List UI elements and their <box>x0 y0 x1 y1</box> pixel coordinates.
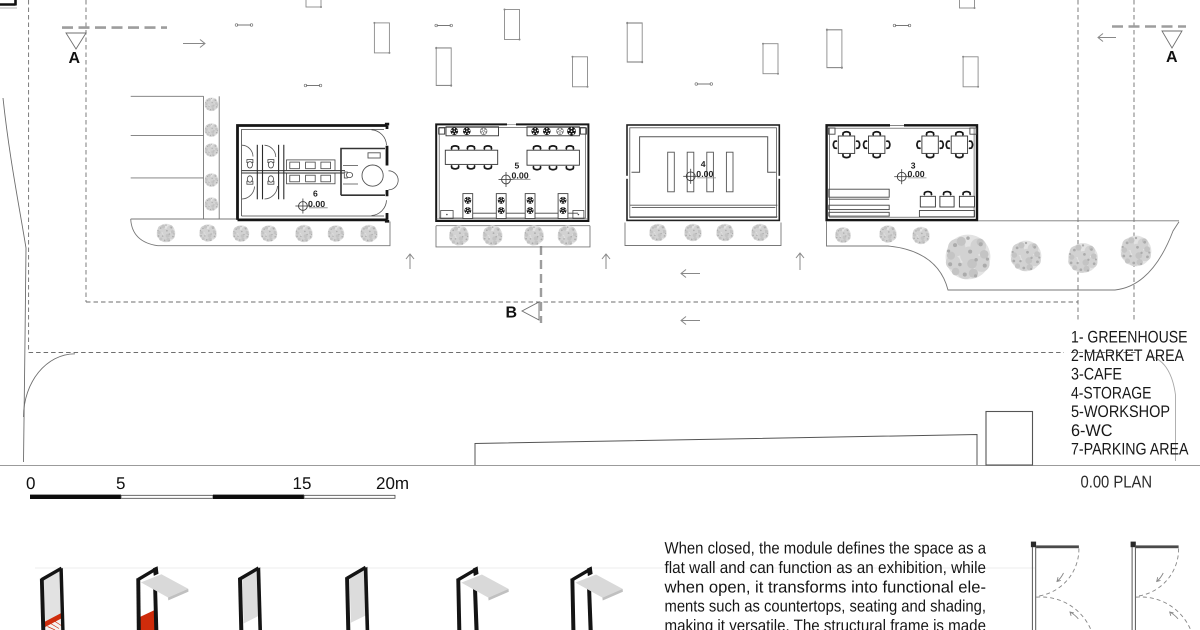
svg-text:making it versatile. The struc: making it versatile. The structural fram… <box>665 616 987 630</box>
svg-text:1- GREENHOUSE: 1- GREENHOUSE <box>1071 327 1188 346</box>
svg-text:when open, it transforms into: when open, it transforms into functional… <box>663 577 986 596</box>
svg-text:20m: 20m <box>376 474 409 493</box>
svg-text:4-STORAGE: 4-STORAGE <box>1071 383 1152 402</box>
svg-text:5: 5 <box>116 474 125 493</box>
svg-text:ments such as countertops, sea: ments such as countertops, seating and s… <box>665 597 987 616</box>
svg-text:6-WC: 6-WC <box>1071 421 1113 440</box>
svg-text:2-MARKET AREA: 2-MARKET AREA <box>1071 346 1185 365</box>
svg-text:flat wall and can function as: flat wall and can function as an exhibit… <box>665 558 987 577</box>
svg-text:When closed, the module define: When closed, the module defines the spac… <box>665 539 987 558</box>
svg-text:7-PARKING AREA: 7-PARKING AREA <box>1071 440 1189 459</box>
svg-text:3-CAFE: 3-CAFE <box>1071 365 1122 384</box>
svg-text:0.00 PLAN: 0.00 PLAN <box>1081 473 1153 492</box>
svg-text:0: 0 <box>26 474 35 493</box>
svg-text:15: 15 <box>293 474 312 493</box>
svg-text:5-WORKSHOP: 5-WORKSHOP <box>1071 402 1170 421</box>
